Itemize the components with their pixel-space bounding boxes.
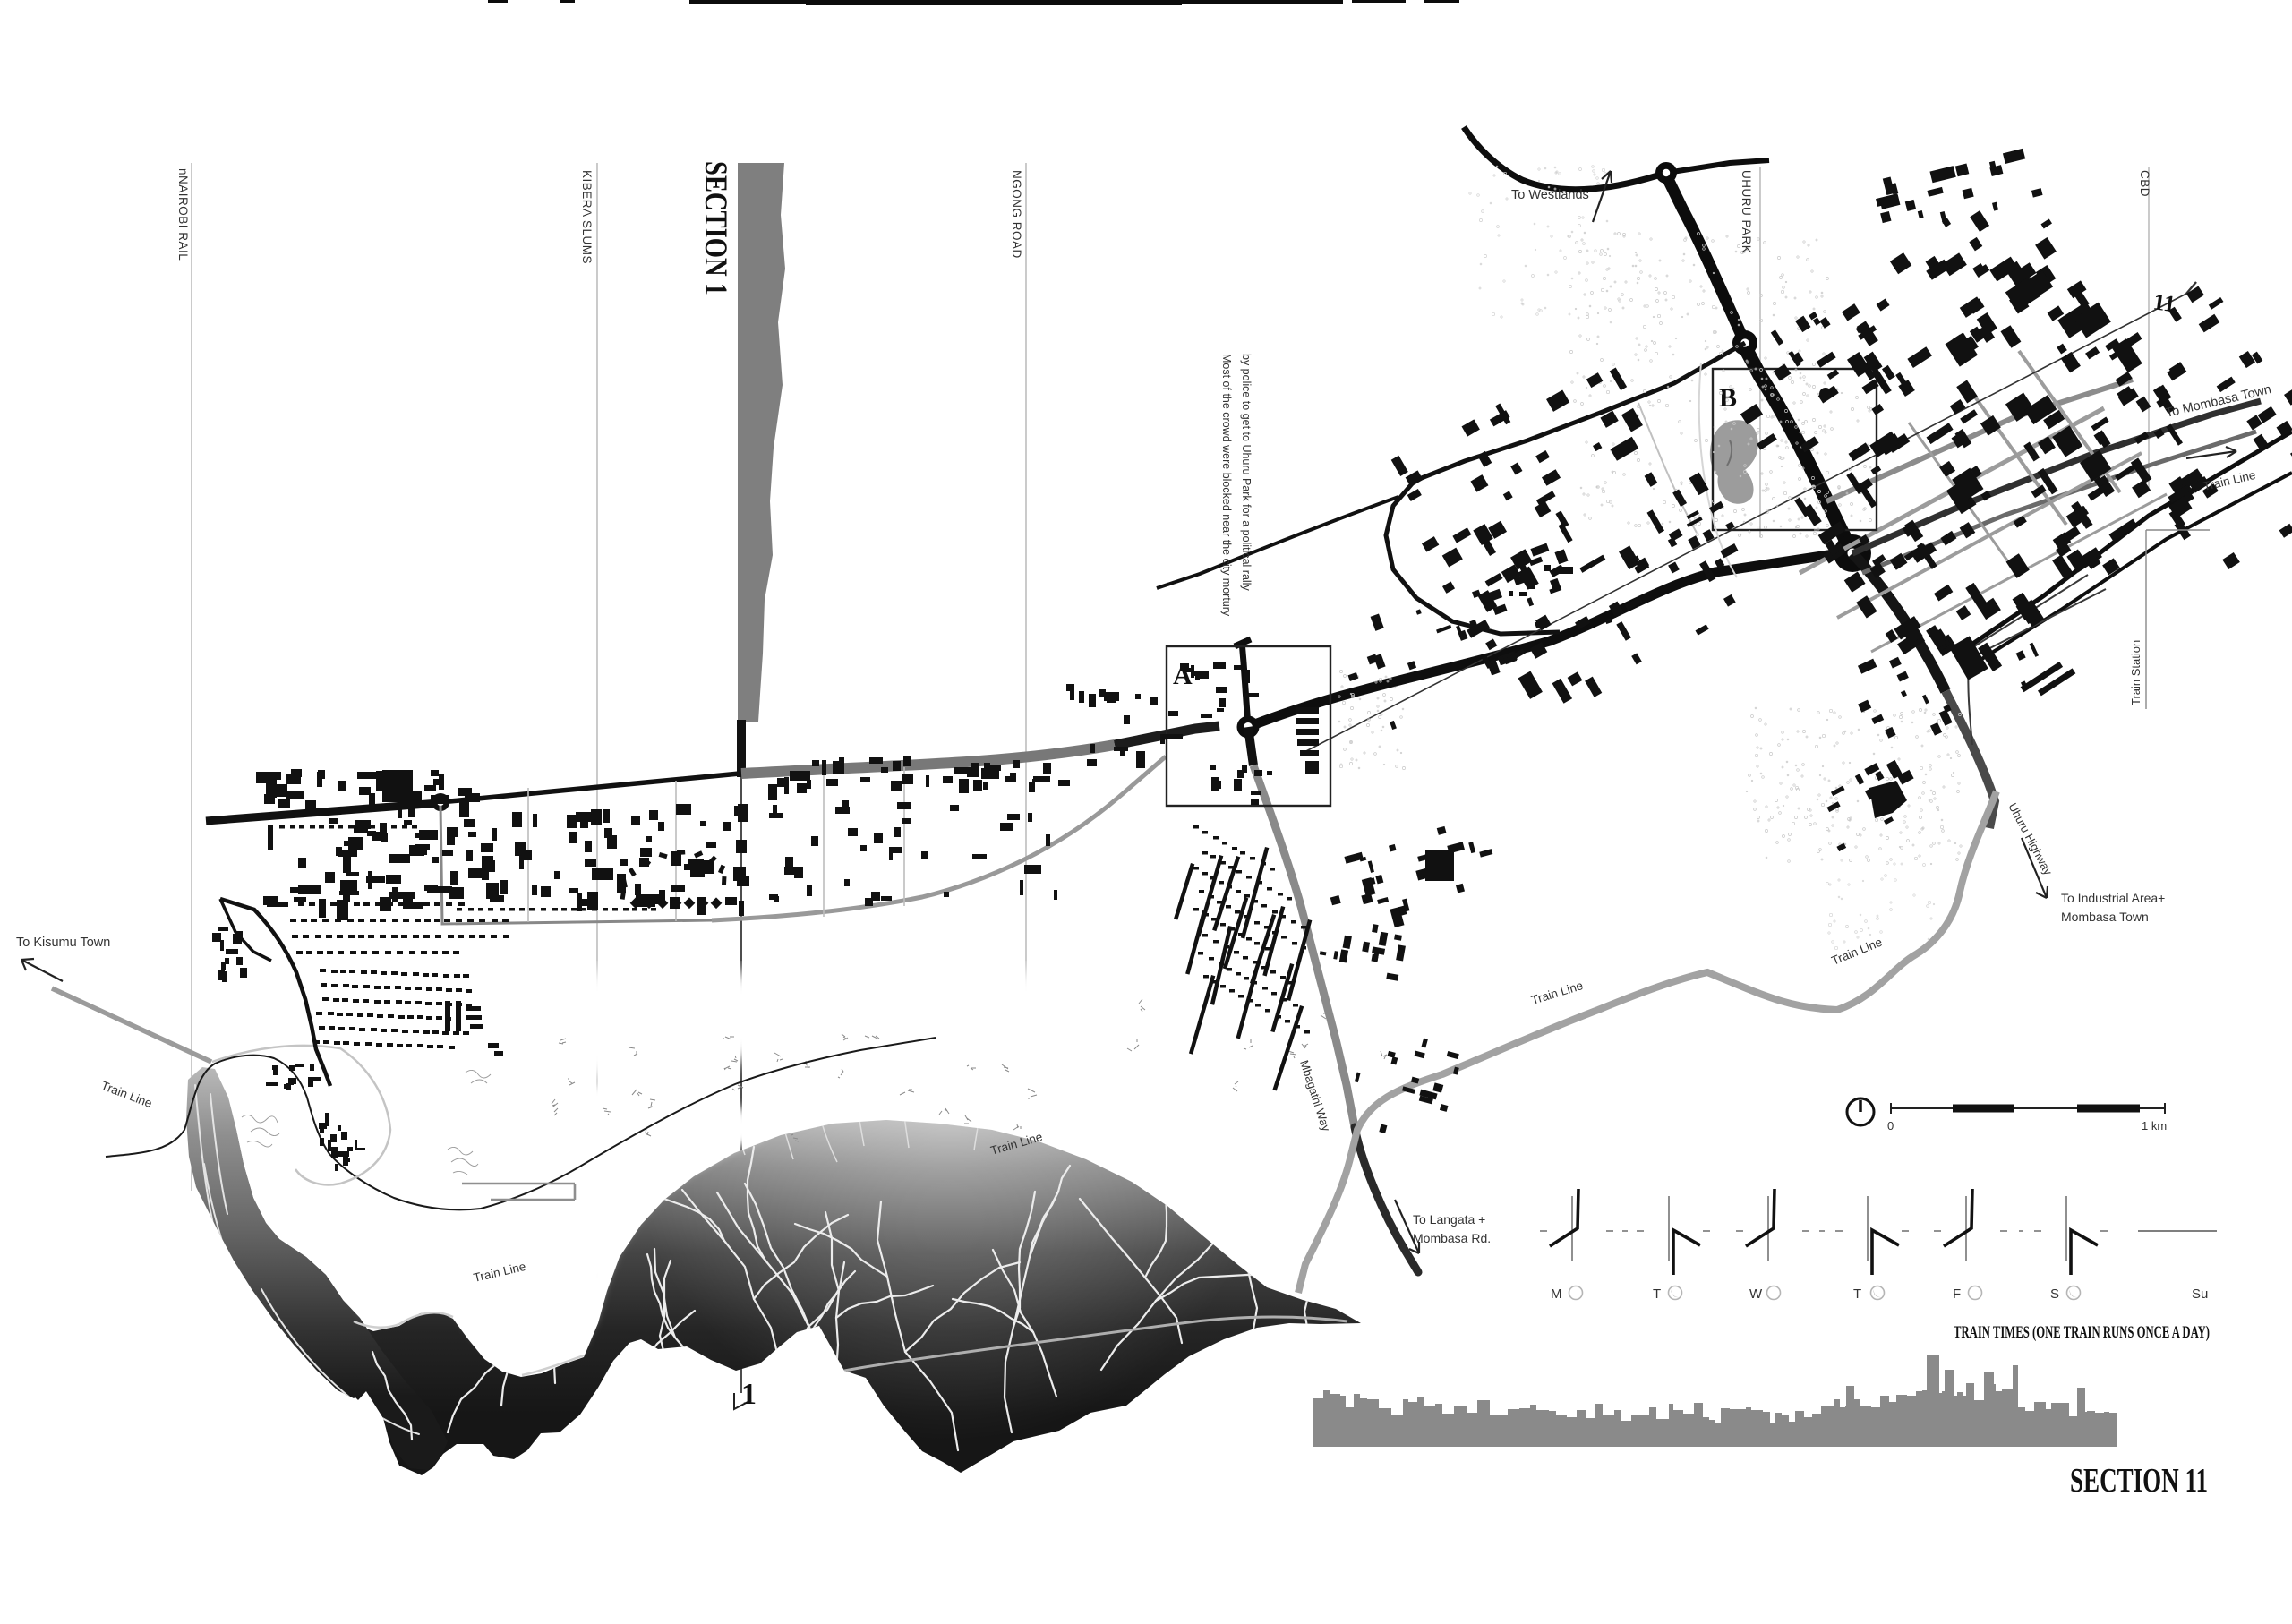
svg-text:nNAIROBI RAIL: nNAIROBI RAIL — [176, 168, 190, 261]
svg-text:0: 0 — [1887, 1119, 1894, 1133]
svg-text:by police to get to Uhuru Park: by police to get to Uhuru Park for a pol… — [1240, 354, 1253, 591]
svg-text:NGONG ROAD: NGONG ROAD — [1010, 170, 1023, 259]
svg-text:Train Station: Train Station — [2129, 640, 2142, 705]
svg-text:To Industrial Area+: To Industrial Area+ — [2061, 891, 2165, 905]
svg-text:F: F — [1953, 1286, 1961, 1302]
svg-text:Mombasa Rd.: Mombasa Rd. — [1413, 1231, 1491, 1245]
svg-text:Su: Su — [2192, 1286, 2208, 1302]
svg-text:1 km: 1 km — [2142, 1119, 2167, 1133]
svg-text:1: 1 — [741, 1378, 757, 1411]
svg-text:UHURU PARK: UHURU PARK — [1740, 170, 1753, 253]
svg-text:SECTION 11: SECTION 11 — [2070, 1462, 2208, 1500]
svg-text:CBD: CBD — [2138, 170, 2151, 197]
svg-text:M: M — [1551, 1286, 1562, 1302]
svg-text:B: B — [1719, 383, 1737, 413]
svg-text:T: T — [1853, 1286, 1861, 1302]
svg-text:Mombasa Town: Mombasa Town — [2061, 910, 2149, 924]
svg-text:To Kisumu Town: To Kisumu Town — [16, 936, 110, 950]
svg-text:S: S — [2050, 1286, 2059, 1302]
svg-text:To Langata +: To Langata + — [1413, 1212, 1485, 1227]
svg-text:To Westlands: To Westlands — [1511, 188, 1589, 202]
svg-text:Most of the crowd were blocked: Most of the crowd were blocked near the … — [1220, 354, 1233, 617]
svg-text:SECTION 1: SECTION 1 — [698, 161, 734, 295]
svg-text:W: W — [1749, 1286, 1763, 1302]
svg-text:T: T — [1653, 1286, 1661, 1302]
svg-text:KIBERA SLUMS: KIBERA SLUMS — [580, 170, 594, 264]
svg-text:TRAIN TIMES (ONE TRAIN RUNS ON: TRAIN TIMES (ONE TRAIN RUNS ONCE A DAY) — [1954, 1323, 2210, 1342]
